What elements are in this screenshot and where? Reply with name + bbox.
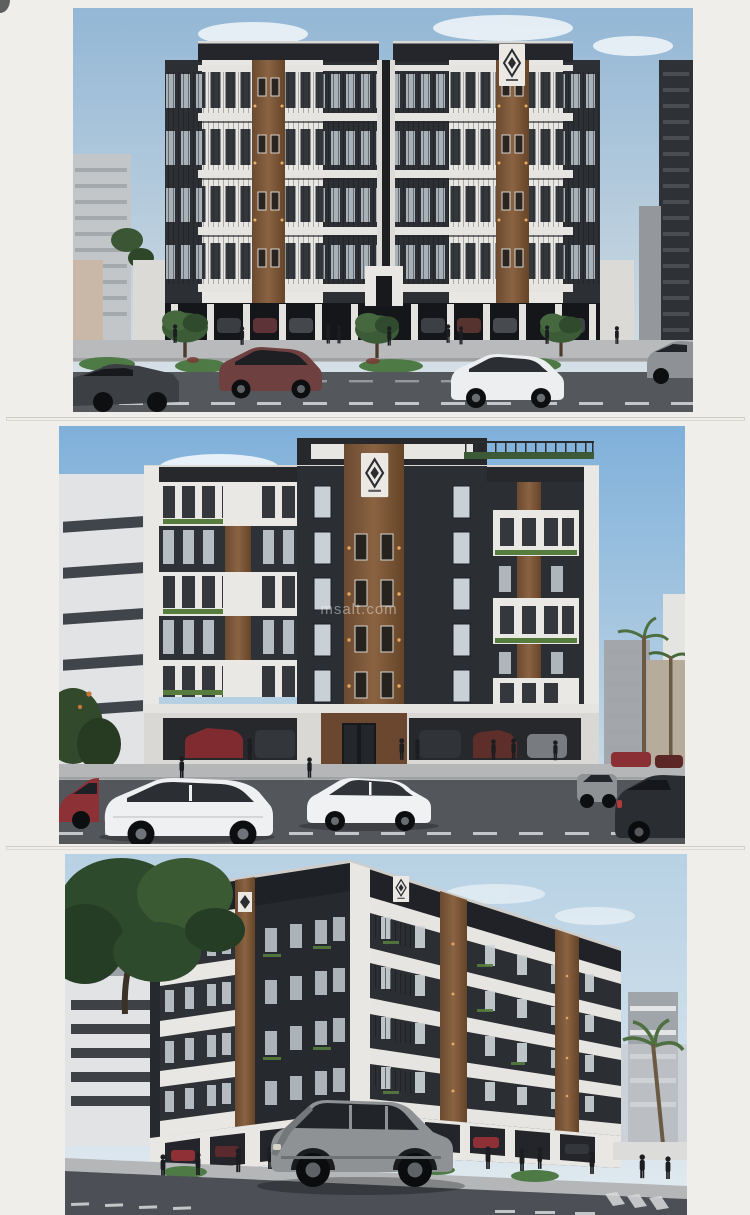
- center-tower: [297, 444, 487, 713]
- listing-gallery: msalt.com: [0, 0, 750, 1215]
- watermark: msalt.com: [320, 601, 397, 618]
- photo-card-3: [6, 849, 745, 1215]
- street-scene: [59, 752, 685, 844]
- render-front-wide: [73, 8, 693, 412]
- photo-card-1: [6, 0, 745, 418]
- render-corner-perspective: [65, 854, 687, 1215]
- building-photo-corner-perspective[interactable]: [65, 854, 687, 1215]
- diamond-emblem-icon: [499, 44, 525, 86]
- background-left-building: [59, 474, 152, 770]
- ground-floor: [144, 704, 599, 769]
- building-photo-front-wide[interactable]: [73, 8, 693, 412]
- render-front-close: msalt.com: [59, 426, 685, 844]
- diamond-emblem-icon: [393, 876, 409, 902]
- wood-strip-right-2: [555, 929, 579, 1133]
- diamond-emblem-icon: [361, 453, 388, 497]
- left-wing: [159, 482, 297, 697]
- wood-strip-right-1: [440, 891, 467, 1123]
- right-wing: [487, 482, 584, 713]
- main-building: [133, 41, 634, 342]
- building-photo-front-close[interactable]: msalt.com: [59, 426, 685, 844]
- photo-card-2: msalt.com: [6, 420, 745, 847]
